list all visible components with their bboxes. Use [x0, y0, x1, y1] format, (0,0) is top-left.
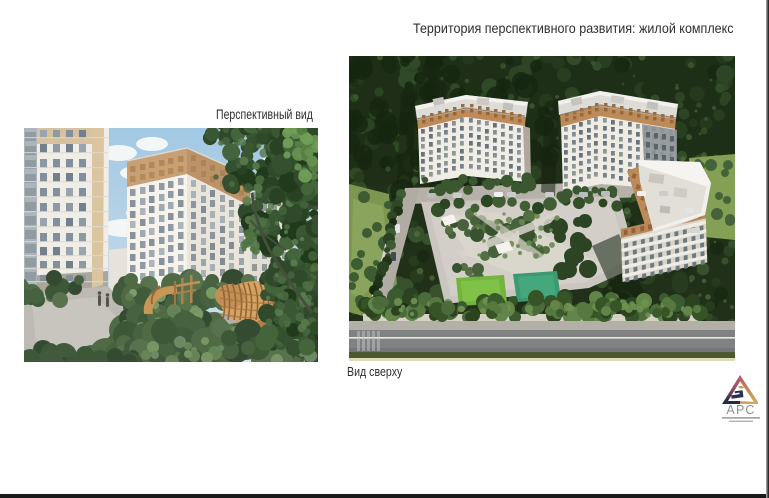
svg-text:АРС: АРС	[726, 403, 755, 417]
